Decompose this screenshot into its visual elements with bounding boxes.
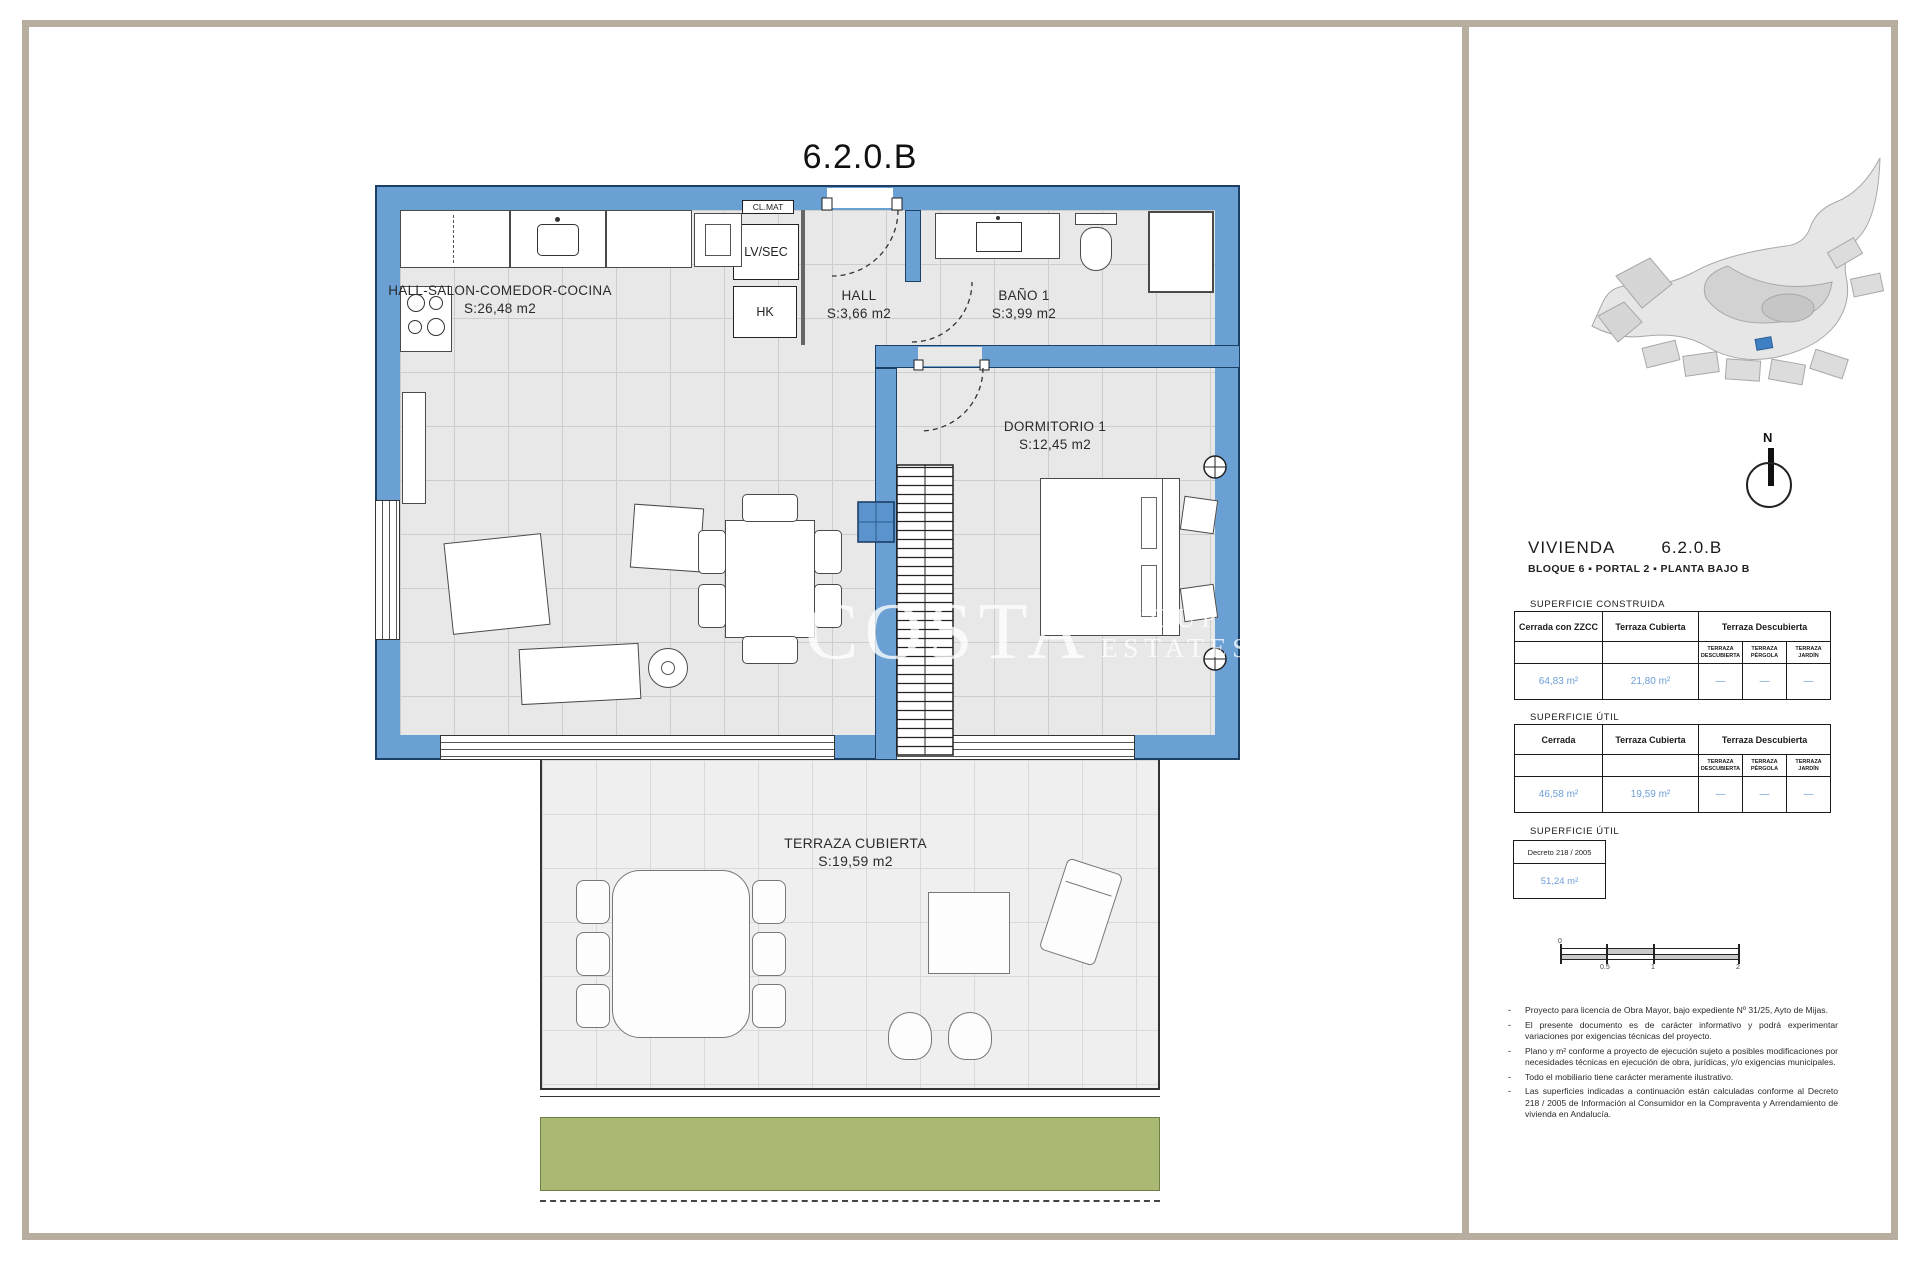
value-cell: — [1787,664,1831,700]
note-item: - Las superficies indicadas a continuaci… [1508,1086,1838,1121]
dining-chair [742,494,798,522]
room-label-hall: HALLS:3,66 m2 [805,287,913,322]
unit-header: VIVIENDA 6.2.0.B [1528,538,1848,558]
col-subheader: TERRAZA DESCUBIERTA [1699,642,1743,664]
plot-boundary-dashed [540,1200,1160,1202]
decreto-box-value: 51,24 m² [1514,864,1605,898]
decreto-box-title: Decreto 218 / 2005 [1514,841,1605,864]
col-subheader-empty [1515,755,1603,777]
dining-chair [698,530,726,574]
laundry-closet: LV/SEC [733,224,799,280]
kitchen-oven [694,213,742,267]
col-subheader-empty [1603,755,1699,777]
note-item: - Plano y m² conforme a proyecto de ejec… [1508,1046,1838,1069]
col-header: Terraza Cubierta [1603,612,1699,642]
value-cell: 19,59 m² [1603,777,1699,813]
heading-superficie-construida: SUPERFICIE CONSTRUIDA [1530,599,1665,610]
living-bedroom-wall [875,368,897,760]
note-item: - Proyecto para licencia de Obra Mayor, … [1508,1005,1838,1017]
dining-table [725,520,815,638]
scale-tick-label: 2 [1736,964,1740,971]
dining-chair [814,530,842,574]
dining-chair [742,636,798,664]
unit-header-code: 6.2.0.B [1661,538,1722,558]
value-cell: 64,83 m² [1515,664,1603,700]
scale-tick-label: 1 [1651,964,1655,971]
bedroom-terrace-window [895,735,1135,760]
hall-bath-wall [905,210,921,282]
garden-strip [540,1117,1160,1191]
clmat-closet: CL.MAT [742,200,794,214]
room-label-terraza: TERRAZA CUBIERTAS:19,59 m2 [768,834,943,870]
highlighted-unit-marker [1755,337,1773,351]
side-table [648,648,688,688]
nightstand [1180,496,1218,534]
sofa [443,533,550,635]
terrace-round-chair [948,1012,992,1060]
toilet-tank [1075,213,1117,225]
terrace-dining-table [612,870,750,1038]
scale-bar: 0 0.5 1 2 [1556,938,1748,972]
bath-vanity [935,213,1060,259]
col-subheader: TERRAZA PÉRGOLA [1743,642,1787,664]
col-subheader: TERRAZA DESCUBIERTA [1699,755,1743,777]
living-side-window [375,500,400,640]
value-cell: — [1787,777,1831,813]
entrance-door-opening [827,188,893,208]
compass-north-label: N [1763,430,1772,445]
heading-superficie-util-decreto: SUPERFICIE ÚTIL [1530,826,1619,837]
panel-divider-line [1462,20,1469,1240]
toilet-bowl [1080,227,1112,271]
compass-circle [1746,462,1792,508]
value-cell: 21,80 m² [1603,664,1699,700]
nightstand [1180,584,1218,622]
unit-header-subtitle: BLOQUE 6 ▪ PORTAL 2 ▪ PLANTA BAJO B [1528,563,1858,575]
col-subheader-empty [1603,642,1699,664]
kitchen-counter [606,210,692,268]
hall-closet-partition [801,210,805,345]
tv-unit [402,392,426,504]
dining-chair [698,584,726,628]
bench-chaise [519,643,642,705]
room-label-dormitorio: DORMITORIO 1S:12,45 m2 [975,418,1135,453]
armchair [630,504,704,573]
terrace-edge-line [540,1096,1160,1097]
terrace-chair [576,932,610,976]
room-label-bano: BAÑO 1S:3,99 m2 [968,287,1080,322]
col-subheader: TERRAZA JARDÍN [1787,642,1831,664]
terrace-coffee-table [928,892,1010,974]
terrace-round-chair [888,1012,932,1060]
kitchen-sink-counter [510,210,606,268]
col-subheader: TERRAZA JARDÍN [1787,755,1831,777]
terrace-chair [576,984,610,1028]
living-terrace-slider-window [440,735,835,760]
notes-list: - Proyecto para licencia de Obra Mayor, … [1508,1005,1838,1124]
room-label-salon: HALL-SALON-COMEDOR-COCINAS:26,48 m2 [360,282,640,317]
terrace-chair [752,984,786,1028]
col-subheader-empty [1515,642,1603,664]
col-header: Cerrada con ZZCC [1515,612,1603,642]
table-superficie-construida: Cerrada con ZZCC Terraza Cubierta Terraz… [1514,611,1831,700]
value-cell: — [1743,777,1787,813]
note-item: - Todo el mobiliario tiene carácter mera… [1508,1072,1838,1084]
site-plan-map [1580,148,1910,458]
value-cell: 46,58 m² [1515,777,1603,813]
col-header: Terraza Descubierta [1699,725,1831,755]
scale-tick-label: 0.5 [1600,964,1610,971]
col-header: Terraza Cubierta [1603,725,1699,755]
heading-superficie-util: SUPERFICIE ÚTIL [1530,712,1619,723]
terrace-chair [752,932,786,976]
bedroom-door-opening [918,347,982,366]
kitchen-counter-dishwasher [400,210,510,268]
value-cell: — [1743,664,1787,700]
terrace-chair [752,880,786,924]
decreto-box: Decreto 218 / 2005 51,24 m² [1513,840,1606,899]
terrace-chair [576,880,610,924]
shower-tray [1148,211,1214,293]
unit-title: 6.2.0.B [780,138,940,177]
hk-closet: HK [733,286,797,338]
dining-chair [814,584,842,628]
unit-header-title: VIVIENDA [1528,538,1615,558]
table-superficie-util: Cerrada Terraza Cubierta Terraza Descubi… [1514,724,1831,813]
value-cell: — [1699,664,1743,700]
value-cell: — [1699,777,1743,813]
col-subheader: TERRAZA PÉRGOLA [1743,755,1787,777]
col-header: Cerrada [1515,725,1603,755]
bed [1040,478,1180,636]
note-item: - El presente documento es de carácter i… [1508,1020,1838,1043]
col-header: Terraza Descubierta [1699,612,1831,642]
